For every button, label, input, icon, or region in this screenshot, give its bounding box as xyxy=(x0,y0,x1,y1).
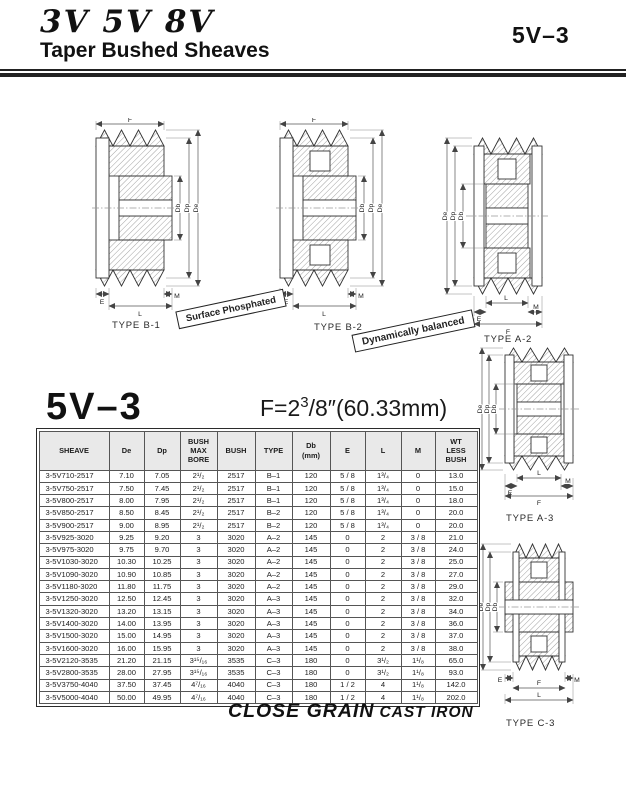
value-cell: 3 xyxy=(180,568,217,580)
column-header: TYPE xyxy=(255,431,292,470)
value-cell: 0 xyxy=(330,544,365,556)
value-cell: 2¹/₂ xyxy=(180,495,217,507)
value-cell: 5 / 8 xyxy=(330,482,365,494)
value-cell: 9.00 xyxy=(109,519,144,531)
material-note: CLOSE GRAINCAST IRON xyxy=(228,700,474,723)
table-row: 3-5V1250-302012.5012.4533020A–3145023 / … xyxy=(39,593,477,605)
value-cell: 0 xyxy=(330,654,365,666)
value-cell: 49.95 xyxy=(144,691,180,703)
value-cell: 10.90 xyxy=(109,568,144,580)
face-width-formula: F=23/8″(60.33mm) xyxy=(260,394,447,422)
value-cell: 3 xyxy=(180,531,217,543)
value-cell: 13.20 xyxy=(109,605,144,617)
value-cell: A–3 xyxy=(255,630,292,642)
value-cell: 2¹/₂ xyxy=(180,482,217,494)
value-cell: 3020 xyxy=(217,630,255,642)
value-cell: 11.75 xyxy=(144,581,180,593)
value-cell: A–2 xyxy=(255,544,292,556)
value-cell: 16.00 xyxy=(109,642,144,654)
value-cell: 7.95 xyxy=(144,495,180,507)
value-cell: 0 xyxy=(330,593,365,605)
table-row: 3-5V710-25177.107.052¹/₂2517B–11205 / 81… xyxy=(39,470,477,482)
sheave-cross-section-a2: DeDpDbLEMF xyxy=(440,126,554,338)
value-cell: 3020 xyxy=(217,593,255,605)
value-cell: 3020 xyxy=(217,568,255,580)
value-cell: A–2 xyxy=(255,581,292,593)
table-row: 3-5V3750-404037.5037.454⁷/₁₆4040C–31801 … xyxy=(39,679,477,691)
value-cell: 10.25 xyxy=(144,556,180,568)
value-cell: 3020 xyxy=(217,605,255,617)
value-cell: 4040 xyxy=(217,679,255,691)
sheave-part-cell: 3-5V850-2517 xyxy=(39,507,109,519)
value-cell: 93.0 xyxy=(435,667,477,679)
value-cell: 21.20 xyxy=(109,654,144,666)
table-row: 3-5V975-30209.759.7033020A–2145023 / 824… xyxy=(39,544,477,556)
value-cell: 3 xyxy=(180,605,217,617)
column-header: Db (mm) xyxy=(292,431,330,470)
value-cell: 1³/₄ xyxy=(365,495,401,507)
value-cell: 0 xyxy=(401,470,435,482)
value-cell: 3 / 8 xyxy=(401,556,435,568)
dim-label-db: Db xyxy=(175,203,182,212)
dim-label-l: L xyxy=(138,311,142,318)
sheave-part-cell: 3-5V750-2517 xyxy=(39,482,109,494)
value-cell: 2 xyxy=(365,642,401,654)
value-cell: 9.25 xyxy=(109,531,144,543)
value-cell: 20.0 xyxy=(435,507,477,519)
value-cell: 4 xyxy=(365,679,401,691)
value-cell: B–1 xyxy=(255,470,292,482)
formula-prefix: F=2 xyxy=(260,395,300,421)
value-cell: 13.0 xyxy=(435,470,477,482)
column-header: WT LESS BUSH xyxy=(435,431,477,470)
column-header: SHEAVE xyxy=(39,431,109,470)
value-cell: 20.0 xyxy=(435,519,477,531)
dim-label-l: L xyxy=(322,311,326,318)
table-row: 3-5V1400-302014.0013.9533020A–3145023 / … xyxy=(39,618,477,630)
dim-label-f: F xyxy=(537,680,541,687)
value-cell: 0 xyxy=(330,556,365,568)
value-cell: 3020 xyxy=(217,642,255,654)
value-cell: 25.0 xyxy=(435,556,477,568)
value-cell: 1¹/₈ xyxy=(401,679,435,691)
value-cell: 3020 xyxy=(217,618,255,630)
value-cell: 9.75 xyxy=(109,544,144,556)
value-cell: 8.50 xyxy=(109,507,144,519)
value-cell: B–1 xyxy=(255,495,292,507)
value-cell: 11.80 xyxy=(109,581,144,593)
sheave-cross-section-a3: DeDpDbLEMF xyxy=(477,338,583,512)
value-cell: 0 xyxy=(330,642,365,654)
value-cell: 120 xyxy=(292,507,330,519)
model-number: 5V–3 xyxy=(46,386,143,429)
value-cell: 3 xyxy=(180,581,217,593)
value-cell: 1¹/₈ xyxy=(401,667,435,679)
dim-label-db: Db xyxy=(458,211,465,220)
dim-label-dp: Dp xyxy=(450,211,457,220)
sheave-part-cell: 3-5V800-2517 xyxy=(39,495,109,507)
value-cell: 0 xyxy=(401,482,435,494)
sheave-part-cell: 3-5V1400-3020 xyxy=(39,618,109,630)
value-cell: 7.50 xyxy=(109,482,144,494)
value-cell: 2¹/₂ xyxy=(180,507,217,519)
column-header: BUSH MAX BORE xyxy=(180,431,217,470)
value-cell: 3 / 8 xyxy=(401,568,435,580)
value-cell: 120 xyxy=(292,470,330,482)
value-cell: 50.00 xyxy=(109,691,144,703)
value-cell: 36.0 xyxy=(435,618,477,630)
value-cell: 0 xyxy=(330,667,365,679)
value-cell: 7.05 xyxy=(144,470,180,482)
dim-label-f: F xyxy=(537,500,541,507)
value-cell: 145 xyxy=(292,593,330,605)
value-cell: 3 / 8 xyxy=(401,544,435,556)
value-cell: 0 xyxy=(330,581,365,593)
value-cell: 1³/₄ xyxy=(365,482,401,494)
value-cell: 65.0 xyxy=(435,654,477,666)
dim-label-de: De xyxy=(477,404,484,413)
sheave-drawing-type-b2: FDeDpDbEML xyxy=(276,118,398,325)
dim-label-l: L xyxy=(504,295,508,302)
value-cell: 3 xyxy=(180,630,217,642)
sheave-part-cell: 3-5V1030-3020 xyxy=(39,556,109,568)
value-cell: 9.20 xyxy=(144,531,180,543)
table-row: 3-5V1320-302013.2013.1533020A–3145023 / … xyxy=(39,605,477,617)
value-cell: 15.95 xyxy=(144,642,180,654)
value-cell: 14.00 xyxy=(109,618,144,630)
value-cell: 27.0 xyxy=(435,568,477,580)
sheave-drawing-type-b1: FDeDpDbEML xyxy=(92,118,214,325)
sheave-part-cell: 3-5V1600-3020 xyxy=(39,642,109,654)
value-cell: B–1 xyxy=(255,482,292,494)
value-cell: 145 xyxy=(292,531,330,543)
value-cell: 8.00 xyxy=(109,495,144,507)
column-header: BUSH xyxy=(217,431,255,470)
value-cell: 38.0 xyxy=(435,642,477,654)
value-cell: 2517 xyxy=(217,495,255,507)
table-row: 3-5V1500-302015.0014.9533020A–3145023 / … xyxy=(39,630,477,642)
dim-label-e: E xyxy=(100,299,105,306)
value-cell: 3 / 8 xyxy=(401,642,435,654)
table-header-row: SHEAVEDeDpBUSH MAX BOREBUSHTYPEDb (mm)EL… xyxy=(39,431,477,470)
value-cell: 5 / 8 xyxy=(330,470,365,482)
value-cell: 0 xyxy=(401,519,435,531)
value-cell: 2¹/₂ xyxy=(180,470,217,482)
value-cell: 3 xyxy=(180,593,217,605)
sheave-cross-section-b1: FDeDpDbEML xyxy=(92,118,214,320)
value-cell: 180 xyxy=(292,679,330,691)
type-a3-label: TYPE A-3 xyxy=(506,513,554,524)
value-cell: 0 xyxy=(401,495,435,507)
value-cell: 15.00 xyxy=(109,630,144,642)
value-cell: 3 / 8 xyxy=(401,581,435,593)
value-cell: 0 xyxy=(330,531,365,543)
value-cell: 2 xyxy=(365,630,401,642)
value-cell: 120 xyxy=(292,482,330,494)
value-cell: 34.0 xyxy=(435,605,477,617)
material-note-light: CAST IRON xyxy=(379,704,473,721)
type-c3-label: TYPE C-3 xyxy=(506,718,555,729)
dim-label-db: Db xyxy=(359,203,366,212)
value-cell: 18.0 xyxy=(435,495,477,507)
value-cell: A–3 xyxy=(255,642,292,654)
value-cell: 0 xyxy=(401,507,435,519)
value-cell: 3535 xyxy=(217,667,255,679)
column-header: E xyxy=(330,431,365,470)
value-cell: 28.00 xyxy=(109,667,144,679)
value-cell: 2 xyxy=(365,618,401,630)
value-cell: 37.50 xyxy=(109,679,144,691)
value-cell: A–3 xyxy=(255,605,292,617)
value-cell: 7.10 xyxy=(109,470,144,482)
type-b2-label: TYPE B-2 xyxy=(314,322,363,333)
sheave-cross-section-c3: DeDpDbEMFL xyxy=(477,536,583,718)
sheave-part-cell: 3-5V925-3020 xyxy=(39,531,109,543)
value-cell: 1³/₄ xyxy=(365,470,401,482)
sheave-part-cell: 3-5V3750-4040 xyxy=(39,679,109,691)
dim-label-dp: Dp xyxy=(485,602,492,611)
page-title: Taper Bushed Sheaves xyxy=(40,39,270,63)
value-cell: 145 xyxy=(292,605,330,617)
value-cell: C–3 xyxy=(255,667,292,679)
value-cell: 0 xyxy=(330,605,365,617)
value-cell: 1³/₄ xyxy=(365,519,401,531)
dim-label-dp: Dp xyxy=(184,203,191,212)
dim-label-de: De xyxy=(193,203,200,212)
sheave-spec-table: SHEAVEDeDpBUSH MAX BOREBUSHTYPEDb (mm)EL… xyxy=(39,431,478,705)
material-note-bold: CLOSE GRAIN xyxy=(228,700,374,722)
sheave-part-cell: 3-5V975-3020 xyxy=(39,544,109,556)
dim-label-m: M xyxy=(174,293,180,300)
dim-label-db: Db xyxy=(492,602,499,611)
dim-label-e: E xyxy=(477,316,482,323)
value-cell: 145 xyxy=(292,618,330,630)
value-cell: A–3 xyxy=(255,593,292,605)
value-cell: 2 xyxy=(365,556,401,568)
column-header: M xyxy=(401,431,435,470)
value-cell: 3 / 8 xyxy=(401,630,435,642)
value-cell: 3 xyxy=(180,556,217,568)
value-cell: 12.50 xyxy=(109,593,144,605)
value-cell: 2517 xyxy=(217,507,255,519)
table-row: 3-5V750-25177.507.452¹/₂2517B–11205 / 81… xyxy=(39,482,477,494)
value-cell: A–2 xyxy=(255,568,292,580)
value-cell: 2 xyxy=(365,544,401,556)
dim-label-l: L xyxy=(537,470,541,477)
value-cell: 3 xyxy=(180,544,217,556)
value-cell: 2 xyxy=(365,605,401,617)
sheave-part-cell: 3-5V710-2517 xyxy=(39,470,109,482)
sheave-drawing-type-a2: DeDpDbLEMF xyxy=(440,126,554,343)
dim-label-dp: Dp xyxy=(484,404,491,413)
sheave-part-cell: 3-5V1500-3020 xyxy=(39,630,109,642)
sheave-part-cell: 3-5V1180-3020 xyxy=(39,581,109,593)
value-cell: 37.45 xyxy=(144,679,180,691)
type-a2-label: TYPE A-2 xyxy=(484,334,532,345)
value-cell: 2 xyxy=(365,593,401,605)
page-code: 5V–3 xyxy=(512,22,570,49)
value-cell: 4⁷/₁₆ xyxy=(180,679,217,691)
value-cell: 0 xyxy=(330,618,365,630)
value-cell: 142.0 xyxy=(435,679,477,691)
sheave-drawing-type-a3: DeDpDbLEMF xyxy=(477,338,583,517)
value-cell: 145 xyxy=(292,630,330,642)
table-row: 3-5V850-25178.508.452¹/₂2517B–21205 / 81… xyxy=(39,507,477,519)
table-row: 3-5V900-25179.008.952¹/₂2517B–21205 / 81… xyxy=(39,519,477,531)
value-cell: A–2 xyxy=(255,531,292,543)
column-header: L xyxy=(365,431,401,470)
value-cell: B–2 xyxy=(255,519,292,531)
value-cell: 15.0 xyxy=(435,482,477,494)
value-cell: 3020 xyxy=(217,531,255,543)
value-cell: 3 / 8 xyxy=(401,593,435,605)
value-cell: 3¹/₂ xyxy=(365,654,401,666)
value-cell: 10.85 xyxy=(144,568,180,580)
value-cell: 10.30 xyxy=(109,556,144,568)
value-cell: 27.95 xyxy=(144,667,180,679)
column-header: Dp xyxy=(144,431,180,470)
value-cell: 37.0 xyxy=(435,630,477,642)
value-cell: 2517 xyxy=(217,470,255,482)
value-cell: 14.95 xyxy=(144,630,180,642)
value-cell: 2¹/₂ xyxy=(180,519,217,531)
type-b1-label: TYPE B-1 xyxy=(112,320,161,331)
value-cell: A–2 xyxy=(255,556,292,568)
sheave-drawing-type-c3: DeDpDbEMFL xyxy=(477,536,583,723)
dim-label-dp: Dp xyxy=(368,203,375,212)
value-cell: 1¹/₈ xyxy=(401,654,435,666)
sheave-part-cell: 3-5V5000-4040 xyxy=(39,691,109,703)
value-cell: 145 xyxy=(292,642,330,654)
value-cell: 145 xyxy=(292,556,330,568)
value-cell: 29.0 xyxy=(435,581,477,593)
dim-label-l: L xyxy=(537,692,541,699)
value-cell: 3020 xyxy=(217,544,255,556)
value-cell: 2 xyxy=(365,581,401,593)
header-rule-thick xyxy=(0,73,626,77)
value-cell: 4⁷/₁₆ xyxy=(180,691,217,703)
value-cell: 3¹⁵/₁₆ xyxy=(180,667,217,679)
value-cell: 120 xyxy=(292,495,330,507)
value-cell: 2517 xyxy=(217,519,255,531)
formula-rest: /8″(60.33mm) xyxy=(309,395,448,421)
dim-label-de: De xyxy=(442,211,449,220)
spec-table-wrapper: SHEAVEDeDpBUSH MAX BOREBUSHTYPEDb (mm)EL… xyxy=(36,428,480,707)
value-cell: 32.0 xyxy=(435,593,477,605)
value-cell: A–3 xyxy=(255,618,292,630)
value-cell: C–3 xyxy=(255,654,292,666)
sheave-part-cell: 3-5V1250-3020 xyxy=(39,593,109,605)
dim-label-m: M xyxy=(533,304,539,311)
value-cell: 7.45 xyxy=(144,482,180,494)
value-cell: 13.95 xyxy=(144,618,180,630)
dim-label-m: M xyxy=(358,293,364,300)
table-row: 3-5V1180-302011.8011.7533020A–2145023 / … xyxy=(39,581,477,593)
value-cell: 3 / 8 xyxy=(401,605,435,617)
value-cell: B–2 xyxy=(255,507,292,519)
value-cell: 120 xyxy=(292,519,330,531)
value-cell: 3¹⁵/₁₆ xyxy=(180,654,217,666)
value-cell: 3020 xyxy=(217,556,255,568)
value-cell: 13.15 xyxy=(144,605,180,617)
column-header: De xyxy=(109,431,144,470)
value-cell: 0 xyxy=(330,568,365,580)
dim-label-de: De xyxy=(377,203,384,212)
value-cell: 3¹/₂ xyxy=(365,667,401,679)
value-cell: 0 xyxy=(330,630,365,642)
value-cell: 9.70 xyxy=(144,544,180,556)
value-cell: 145 xyxy=(292,581,330,593)
table-row: 3-5V1600-302016.0015.9533020A–3145023 / … xyxy=(39,642,477,654)
value-cell: 2 xyxy=(365,568,401,580)
value-cell: 180 xyxy=(292,654,330,666)
value-cell: 24.0 xyxy=(435,544,477,556)
value-cell: 1 / 2 xyxy=(330,679,365,691)
table-row: 3-5V2800-353528.0027.953¹⁵/₁₆3535C–31800… xyxy=(39,667,477,679)
table-row: 3-5V2120-353521.2021.153¹⁵/₁₆3535C–31800… xyxy=(39,654,477,666)
value-cell: 2517 xyxy=(217,482,255,494)
value-cell: C–3 xyxy=(255,679,292,691)
dim-label-f: F xyxy=(128,118,132,124)
value-cell: 1³/₄ xyxy=(365,507,401,519)
value-cell: 3 xyxy=(180,618,217,630)
value-cell: 3020 xyxy=(217,581,255,593)
value-cell: 3 xyxy=(180,642,217,654)
dim-label-m: M xyxy=(574,677,580,684)
value-cell: 21.15 xyxy=(144,654,180,666)
value-cell: 3 / 8 xyxy=(401,531,435,543)
formula-superscript: 3 xyxy=(300,394,308,411)
value-cell: 5 / 8 xyxy=(330,519,365,531)
catalog-page: 3V 5V 8V Taper Bushed Sheaves 5V–3 FDeDp… xyxy=(0,0,626,800)
value-cell: 2 xyxy=(365,531,401,543)
sheave-cross-section-b2: FDeDpDbEML xyxy=(276,118,398,320)
sheave-part-cell: 3-5V2800-3535 xyxy=(39,667,109,679)
value-cell: 8.45 xyxy=(144,507,180,519)
sheave-part-cell: 3-5V1320-3020 xyxy=(39,605,109,617)
value-cell: 5 / 8 xyxy=(330,495,365,507)
value-cell: 180 xyxy=(292,667,330,679)
table-row: 3-5V1030-302010.3010.2533020A–2145023 / … xyxy=(39,556,477,568)
dim-label-f: F xyxy=(312,118,316,124)
value-cell: 145 xyxy=(292,568,330,580)
value-cell: 145 xyxy=(292,544,330,556)
value-cell: 5 / 8 xyxy=(330,507,365,519)
table-row: 3-5V1090-302010.9010.8533020A–2145023 / … xyxy=(39,568,477,580)
sheave-part-cell: 3-5V1090-3020 xyxy=(39,568,109,580)
value-cell: 3535 xyxy=(217,654,255,666)
dim-label-m: M xyxy=(565,478,571,485)
value-cell: 3 / 8 xyxy=(401,618,435,630)
series-title: 3V 5V 8V xyxy=(40,4,214,40)
value-cell: 8.95 xyxy=(144,519,180,531)
header-rule-thin xyxy=(0,69,626,71)
sheave-part-cell: 3-5V2120-3535 xyxy=(39,654,109,666)
dim-label-e: E xyxy=(498,677,503,684)
table-row: 3-5V925-30209.259.2033020A–2145023 / 821… xyxy=(39,531,477,543)
dim-label-db: Db xyxy=(491,404,498,413)
value-cell: 21.0 xyxy=(435,531,477,543)
table-row: 3-5V800-25178.007.952¹/₂2517B–11205 / 81… xyxy=(39,495,477,507)
value-cell: 12.45 xyxy=(144,593,180,605)
sheave-part-cell: 3-5V900-2517 xyxy=(39,519,109,531)
